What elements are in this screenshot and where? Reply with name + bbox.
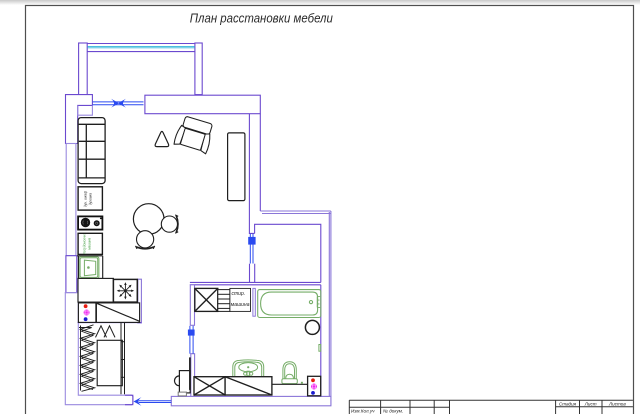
svg-text:Изм.Кол.уч: Изм.Кол.уч [351,409,375,414]
svg-text:Лист: Лист [584,402,597,407]
svg-text:машина: машина [88,238,92,250]
svg-text:Стадия: Стадия [559,402,577,407]
svg-text:духовка: духовка [89,193,93,205]
svg-text:стир.: стир. [232,291,246,297]
svg-text:машина: машина [231,302,250,308]
svg-text:№ докум.: № докум. [383,409,403,414]
svg-text:Листов: Листов [608,402,626,407]
svg-text:План расстановки мебели: План расстановки мебели [190,10,334,25]
svg-text:дух. шкаф: дух. шкаф [84,191,88,207]
svg-text:посудомоечн.: посудомоечн. [83,234,87,254]
